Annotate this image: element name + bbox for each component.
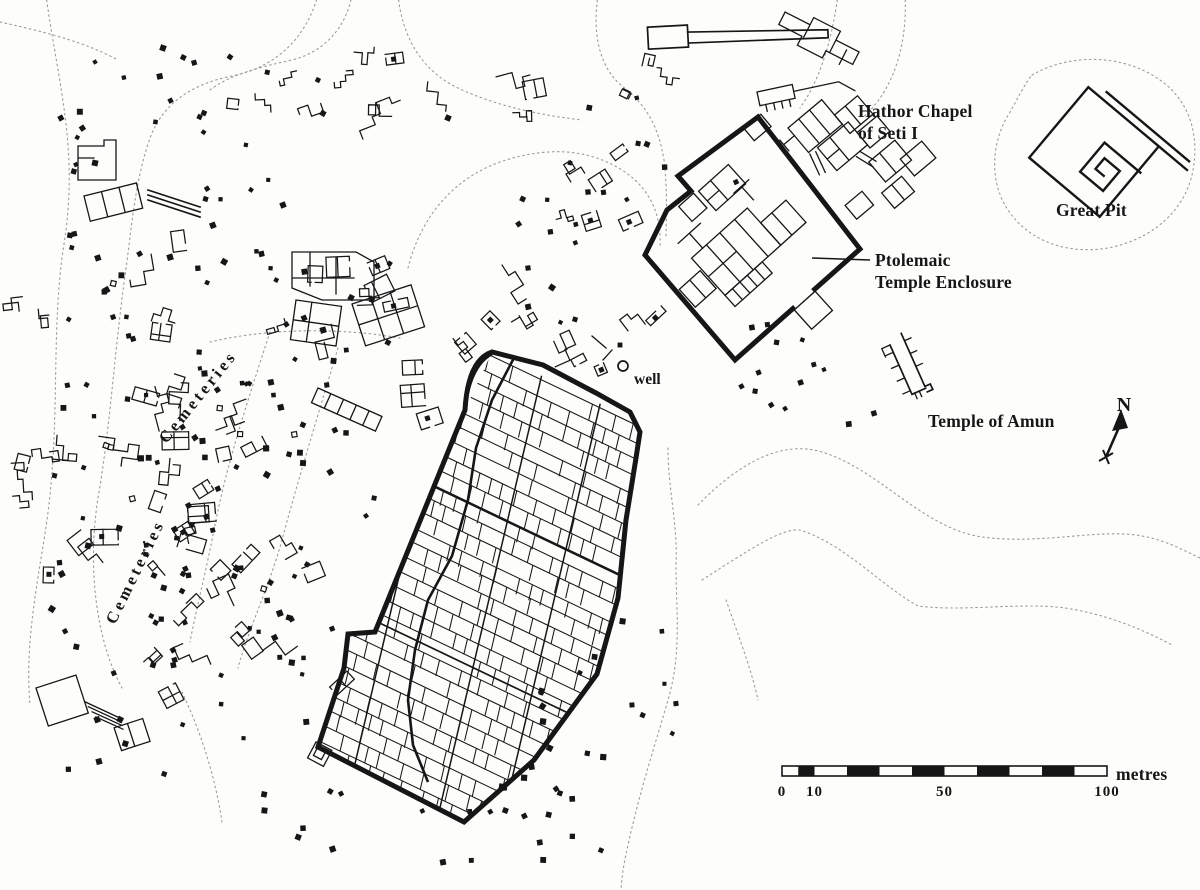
ruin-structure <box>171 230 187 252</box>
tomb-shaft-dot <box>297 450 303 456</box>
tomb-shaft-dot <box>69 245 75 251</box>
ruin-wall-fragment <box>53 435 78 461</box>
tomb-shaft-dot <box>547 229 553 235</box>
tomb-shaft-dot <box>95 758 102 765</box>
tomb-shaft-dot <box>94 254 101 261</box>
ruin-structure <box>232 544 260 572</box>
label-hathor-chapel-line2: of Seti I <box>858 123 918 143</box>
open-tomb-marker <box>110 280 116 286</box>
chapel-outwork <box>757 72 855 113</box>
tomb-shaft-dot <box>768 402 775 409</box>
tomb-shaft-dot <box>624 197 630 203</box>
tomb-shaft-dot <box>300 460 306 466</box>
tomb-shaft-dot <box>191 59 198 66</box>
tomb-shaft-dot <box>294 833 301 840</box>
ruin-structure <box>91 529 118 545</box>
tomb-shaft-dot <box>662 164 668 170</box>
tomb-shaft-dot <box>519 196 526 203</box>
tomb-shaft-dot <box>92 414 96 418</box>
tomb-shaft-dot <box>191 434 199 442</box>
scale-tick-label: 100 <box>1094 784 1120 800</box>
ruin-wall-fragment <box>554 208 573 225</box>
tomb-chapel-with-court <box>78 140 116 180</box>
tomb-shaft-dot <box>268 266 273 271</box>
tomb-shaft-dot <box>148 613 154 619</box>
scale-bar-segment <box>798 766 814 776</box>
tomb-shaft-dot <box>639 712 645 718</box>
ruin-wall-fragment <box>265 319 287 335</box>
scale-tick-label: 0 <box>778 784 787 800</box>
tomb-shaft-dot <box>749 324 755 330</box>
tomb-shaft-dot <box>166 253 174 261</box>
tomb-shaft-dot <box>110 314 116 320</box>
tomb-shaft-dot <box>440 859 447 866</box>
open-tomb-marker <box>103 443 109 449</box>
tomb-shaft-dot <box>71 168 78 175</box>
pyramid-tomb-ramp <box>36 660 150 770</box>
tomb-shaft-dot <box>601 189 607 195</box>
tomb-shaft-dot <box>258 251 265 258</box>
tomb-shaft-dot <box>241 736 245 740</box>
ruin-structure <box>481 311 500 330</box>
ruin-structure <box>216 446 232 462</box>
tomb-shaft-dot <box>152 619 159 626</box>
tomb-shaft-dot <box>301 268 308 275</box>
tomb-shaft-dot <box>277 404 284 411</box>
tomb-shaft-dot <box>170 662 176 668</box>
tomb-shaft-dot <box>159 616 164 621</box>
tomb-compound <box>292 252 374 300</box>
ruin-structure <box>367 256 389 276</box>
ruin-structure <box>571 353 587 366</box>
tomb-shaft-dot <box>673 701 679 707</box>
tomb-shaft-dot <box>61 405 67 411</box>
label-cemeteries-lower: Cemeteries <box>102 516 169 627</box>
tomb-shaft-dot <box>634 95 639 100</box>
ruin-structure <box>158 683 184 708</box>
tomb-shaft-dot <box>585 189 591 195</box>
tomb-shaft-dot <box>218 197 222 201</box>
open-tomb-marker <box>217 405 222 410</box>
open-tomb-marker <box>129 496 135 502</box>
ruin-wall-fragment <box>174 637 211 675</box>
tomb-shaft-dot <box>261 791 268 798</box>
tomb-shaft-dot <box>619 618 626 625</box>
tomb-shaft-dot <box>243 143 248 148</box>
north-arrow-tail-cross <box>1099 450 1113 464</box>
tomb-shaft-dot <box>254 249 259 254</box>
ruin-wall-fragment <box>13 495 29 509</box>
tomb-shaft-dot <box>264 69 270 75</box>
tomb-shaft-dot <box>444 114 452 122</box>
ruin-wall-fragment <box>159 458 181 487</box>
tomb-shaft-dot <box>71 231 77 237</box>
tomb-shaft-dot <box>570 834 575 839</box>
tomb-shaft-dot <box>62 628 68 634</box>
scale-bar: 01050100 <box>778 766 1120 800</box>
village-house-grid <box>191 263 720 890</box>
tomb-shaft-dot <box>303 719 309 725</box>
tomb-shaft-dot <box>525 303 532 310</box>
ruin-wall-fragment <box>544 330 581 367</box>
tomb-shaft-dot <box>264 598 270 604</box>
ruin-structure <box>588 169 612 191</box>
tomb-shaft-dot <box>643 141 650 148</box>
tomb-shaft-dot <box>629 702 634 707</box>
ruin-wall-fragment <box>228 622 253 647</box>
tomb-shaft-dot <box>598 847 604 853</box>
tomb-shaft-dot <box>57 560 63 566</box>
ruin-wall-fragment <box>126 254 156 287</box>
tomb-shaft-dot <box>755 369 761 375</box>
tomb-shaft-dot <box>240 381 245 386</box>
tomb-shaft-dot <box>220 258 228 266</box>
ptolemaic-leader-line <box>812 258 870 260</box>
tomb-shaft-dot <box>138 455 144 461</box>
tomb-shaft-dot <box>81 465 87 471</box>
tomb-shaft-dot <box>273 277 279 283</box>
tomb-shaft-dot <box>92 59 98 65</box>
tomb-shaft-dot <box>545 198 550 203</box>
tomb-shaft-dot <box>185 502 192 509</box>
tomb-shaft-dot <box>329 845 337 853</box>
ruin-structure <box>594 363 607 376</box>
tomb-shaft-dot <box>48 605 56 613</box>
tomb-shaft-dot <box>618 343 623 348</box>
tomb-shaft-dot <box>196 349 202 355</box>
ruin-structure <box>227 98 239 109</box>
ruin-structure <box>618 211 643 231</box>
tomb-shaft-dot <box>227 54 234 61</box>
tomb-shaft-dot <box>161 771 168 778</box>
tomb-shaft-dot <box>515 221 522 228</box>
enclosure-gate-gap <box>794 290 812 306</box>
ruin-wall-fragment <box>353 46 374 65</box>
ruin-wall-fragment <box>95 436 139 468</box>
tomb-shaft-dot <box>292 356 298 362</box>
tomb-shaft-dot <box>271 634 279 642</box>
tomb-shaft-dot <box>198 366 203 371</box>
tomb-shaft-dot <box>57 114 64 121</box>
ruin-structure <box>150 322 172 342</box>
tomb-shaft-dot <box>363 513 369 519</box>
tomb-shaft-dot <box>80 516 85 521</box>
tomb-shaft-dot <box>871 410 878 417</box>
tomb-shaft-dot <box>591 654 597 660</box>
tomb-chapel-divided <box>84 183 143 221</box>
tomb-shaft-dot <box>573 222 578 227</box>
tomb-shaft-dot <box>231 573 238 580</box>
ruin-structure <box>402 360 423 375</box>
label-temple-of-amun: Temple of Amun <box>928 411 1055 431</box>
tomb-shaft-dot <box>185 572 191 578</box>
ruin-wall-fragment <box>642 53 655 68</box>
scale-bar-segment <box>847 766 880 776</box>
tomb-shaft-dot <box>77 109 83 115</box>
tomb-compound <box>290 300 341 346</box>
ruin-wall-fragment <box>513 111 532 122</box>
contour-lines <box>0 0 1200 890</box>
tomb-shaft-dot <box>558 320 563 325</box>
t-shaped-building <box>647 18 828 49</box>
tomb-shaft-dot <box>659 629 664 634</box>
tomb-shaft-dot <box>300 672 305 677</box>
tomb-shaft-dot <box>326 468 334 476</box>
ruin-wall-fragment <box>217 399 255 434</box>
tomb-shaft-dot <box>752 388 758 394</box>
tomb-shaft-dot <box>118 272 124 278</box>
tomb-shaft-dot <box>738 383 745 390</box>
tomb-shaft-dot <box>159 44 167 52</box>
temple-interior-rooms <box>638 150 816 326</box>
ruin-wall-fragment <box>151 305 178 328</box>
tomb-shaft-dot <box>521 813 528 820</box>
tomb-shaft-dot <box>288 659 295 666</box>
tomb-shaft-dot <box>209 221 217 229</box>
scale-tick-label: 10 <box>806 784 823 800</box>
tomb-shaft-dot <box>545 811 552 818</box>
tomb-shaft-dot <box>276 609 284 617</box>
tomb-shaft-dot <box>219 702 224 707</box>
tomb-shaft-dot <box>298 545 303 550</box>
label-great-pit: Great Pit <box>1056 200 1127 220</box>
tomb-shaft-dot <box>600 754 607 761</box>
ruin-structure <box>522 78 546 100</box>
tomb-shaft-dot <box>121 75 126 80</box>
tomb-shaft-dot <box>487 809 493 815</box>
tomb-shaft-dot <box>180 722 186 728</box>
tomb-shaft-dot <box>584 750 590 756</box>
tomb-shaft-dot <box>419 808 425 814</box>
ruin-wall-fragment <box>278 71 299 86</box>
tomb-shaft-dot <box>669 731 675 737</box>
tomb-shaft-dot <box>733 179 739 185</box>
tomb-shaft-dot <box>204 185 211 192</box>
ruin-wall-fragment <box>511 309 539 334</box>
tomb-shaft-dot <box>324 382 330 388</box>
open-tomb-marker <box>291 432 297 438</box>
ruin-structure <box>610 144 628 161</box>
tomb-shaft-dot <box>846 421 852 427</box>
tomb-shaft-dot <box>156 73 163 80</box>
ruin-structure <box>193 479 214 498</box>
tomb-shaft-dot <box>469 858 474 863</box>
causeway-ramp-lines <box>148 190 200 217</box>
tomb-shaft-dot <box>572 316 578 322</box>
label-ptolemaic-line2: Temple Enclosure <box>875 272 1012 292</box>
tomb-shaft-dot <box>338 791 344 797</box>
ruin-structure <box>148 490 166 512</box>
tomb-shaft-dot <box>202 196 208 202</box>
tomb-shaft-dot <box>146 455 152 461</box>
tomb-shaft-dot <box>782 406 788 412</box>
tomb-shaft-dot <box>83 382 89 388</box>
tomb-shaft-dot <box>811 362 817 368</box>
tomb-shaft-dot <box>111 670 117 676</box>
tomb-shaft-dot <box>204 280 210 286</box>
tomb-shaft-dot <box>267 379 274 386</box>
north-arrow <box>1099 409 1128 464</box>
ruin-wall-fragment <box>561 158 585 182</box>
tomb-shaft-dot <box>344 347 349 352</box>
open-tomb-marker <box>261 586 267 592</box>
tomb-shaft-dot <box>195 265 201 271</box>
ruin-structure <box>43 567 54 583</box>
tomb-shaft-dot <box>279 201 286 208</box>
tomb-shaft-dot <box>502 807 509 814</box>
tomb-shaft-dot <box>277 655 282 660</box>
label-north: N <box>1117 394 1132 416</box>
tomb-shaft-dot <box>635 141 641 147</box>
tomb-shaft-dot <box>214 485 221 492</box>
ruin-wall-fragment <box>298 101 324 120</box>
tomb-shaft-dot <box>331 427 338 434</box>
ruin-structure <box>400 384 425 408</box>
ruin-wall-fragment <box>2 297 24 313</box>
scale-bar-segment <box>1042 766 1075 776</box>
tomb-shaft-dot <box>301 656 305 660</box>
ruin-wall-fragment <box>333 70 354 88</box>
temple-of-amun-structure <box>879 331 934 404</box>
tomb-shaft-dot <box>330 358 336 364</box>
tomb-shaft-dot <box>292 573 298 579</box>
tomb-shaft-dot <box>160 584 167 591</box>
tomb-shaft-dot <box>122 740 129 747</box>
tomb-shaft-dot <box>821 367 826 372</box>
scale-tick-label: 50 <box>936 784 953 800</box>
tomb-shaft-dot <box>66 767 71 772</box>
tomb-shaft-dot <box>233 464 239 470</box>
label-well: well <box>634 371 661 388</box>
tomb-shaft-dot <box>79 124 86 131</box>
tomb-shaft-dot <box>261 807 267 813</box>
ruin-wall-fragment <box>38 308 50 328</box>
tomb-shaft-dot <box>586 105 592 111</box>
tomb-shaft-dot <box>74 135 80 141</box>
tomb-shaft-dot <box>327 788 334 795</box>
ruin-structure <box>646 306 666 326</box>
tomb-shaft-dot <box>179 588 186 595</box>
ruin-wall-fragment <box>619 88 631 99</box>
tomb-shaft-dots <box>48 44 878 865</box>
tomb-shaft-dot <box>537 839 543 845</box>
tomb-shaft-dot <box>286 451 292 457</box>
tomb-shaft-dot <box>58 570 66 578</box>
tomb-shaft-dot <box>199 438 206 445</box>
tomb-shaft-dot <box>540 857 546 863</box>
tomb-shaft-dot <box>136 250 143 257</box>
tomb-shaft-dot <box>540 718 547 725</box>
ptolemaic-temple-enclosure <box>638 117 860 360</box>
site-map-canvas: 01050100 Hathor Chapel of Seti I Great P… <box>0 0 1200 890</box>
label-ptolemaic-line1: Ptolemaic <box>875 250 951 270</box>
tomb-shaft-dot <box>573 240 579 246</box>
label-scale-unit: metres <box>1116 764 1167 784</box>
tomb-shaft-dot <box>52 473 58 479</box>
tomb-shaft-dot <box>319 326 326 333</box>
tomb-cell-row <box>311 388 381 431</box>
tomb-shaft-dot <box>521 774 528 781</box>
tomb-shaft-dot <box>257 630 261 634</box>
tomb-shaft-dot <box>797 379 804 386</box>
tomb-shaft-dot <box>248 187 254 193</box>
tomb-shaft-dot <box>548 283 556 291</box>
tomb-shaft-dot <box>66 316 72 322</box>
tomb-shaft-dot <box>343 430 349 436</box>
tomb-shaft-dot <box>371 495 377 501</box>
label-hathor-chapel-line1: Hathor Chapel <box>858 101 973 121</box>
tomb-shaft-dot <box>125 396 131 402</box>
tomb-shaft-dot <box>218 672 224 678</box>
tomb-shaft-dot <box>64 382 70 388</box>
tomb-shaft-dot <box>266 178 270 182</box>
tomb-shaft-dot <box>153 119 158 124</box>
tomb-shaft-dot <box>180 54 187 61</box>
ruin-wall-fragment <box>620 309 646 335</box>
tomb-shaft-dot <box>201 129 207 135</box>
tomb-shaft-dot <box>91 159 98 166</box>
ruin-wall-fragment <box>655 68 680 86</box>
ruin-wall-fragment <box>31 446 59 465</box>
tomb-shaft-dot <box>315 77 321 83</box>
tomb-shaft-dot <box>124 314 129 319</box>
site-map: 01050100 Hathor Chapel of Seti I Great P… <box>0 0 1200 890</box>
tomb-shaft-dot <box>202 455 208 461</box>
tomb-shaft-dot <box>73 643 80 650</box>
tomb-shaft-dot <box>115 525 122 532</box>
ruin-structure <box>326 256 350 277</box>
ruin-wall-fragment <box>255 93 271 112</box>
tomb-shaft-dot <box>329 625 335 631</box>
tomb-shaft-dot <box>210 527 216 533</box>
ruin-wall-fragment <box>205 574 241 613</box>
tomb-shaft-dot <box>150 572 157 579</box>
tomb-shaft-dot <box>271 393 276 398</box>
tomb-shaft-dot <box>569 796 575 802</box>
tomb-shaft-dot <box>662 682 666 686</box>
tomb-shaft-dot <box>263 471 271 479</box>
ruin-wall-fragment <box>425 82 449 111</box>
tomb-shaft-dot <box>267 579 274 586</box>
scale-bar-segment <box>912 766 945 776</box>
ruin-structure <box>177 533 206 554</box>
tomb-shaft-dot <box>300 825 306 831</box>
ruin-structure <box>581 211 601 232</box>
scale-bar-segment <box>977 766 1010 776</box>
tomb-shaft-dot <box>525 265 531 271</box>
tomb-shaft-dot <box>155 460 160 465</box>
ruin-structure <box>385 52 404 65</box>
ruin-structure <box>416 407 443 430</box>
tomb-shaft-dot <box>299 421 306 428</box>
workmens-village <box>191 263 720 890</box>
tomb-shaft-dot <box>774 339 780 345</box>
tomb-shaft-dot <box>800 337 806 343</box>
